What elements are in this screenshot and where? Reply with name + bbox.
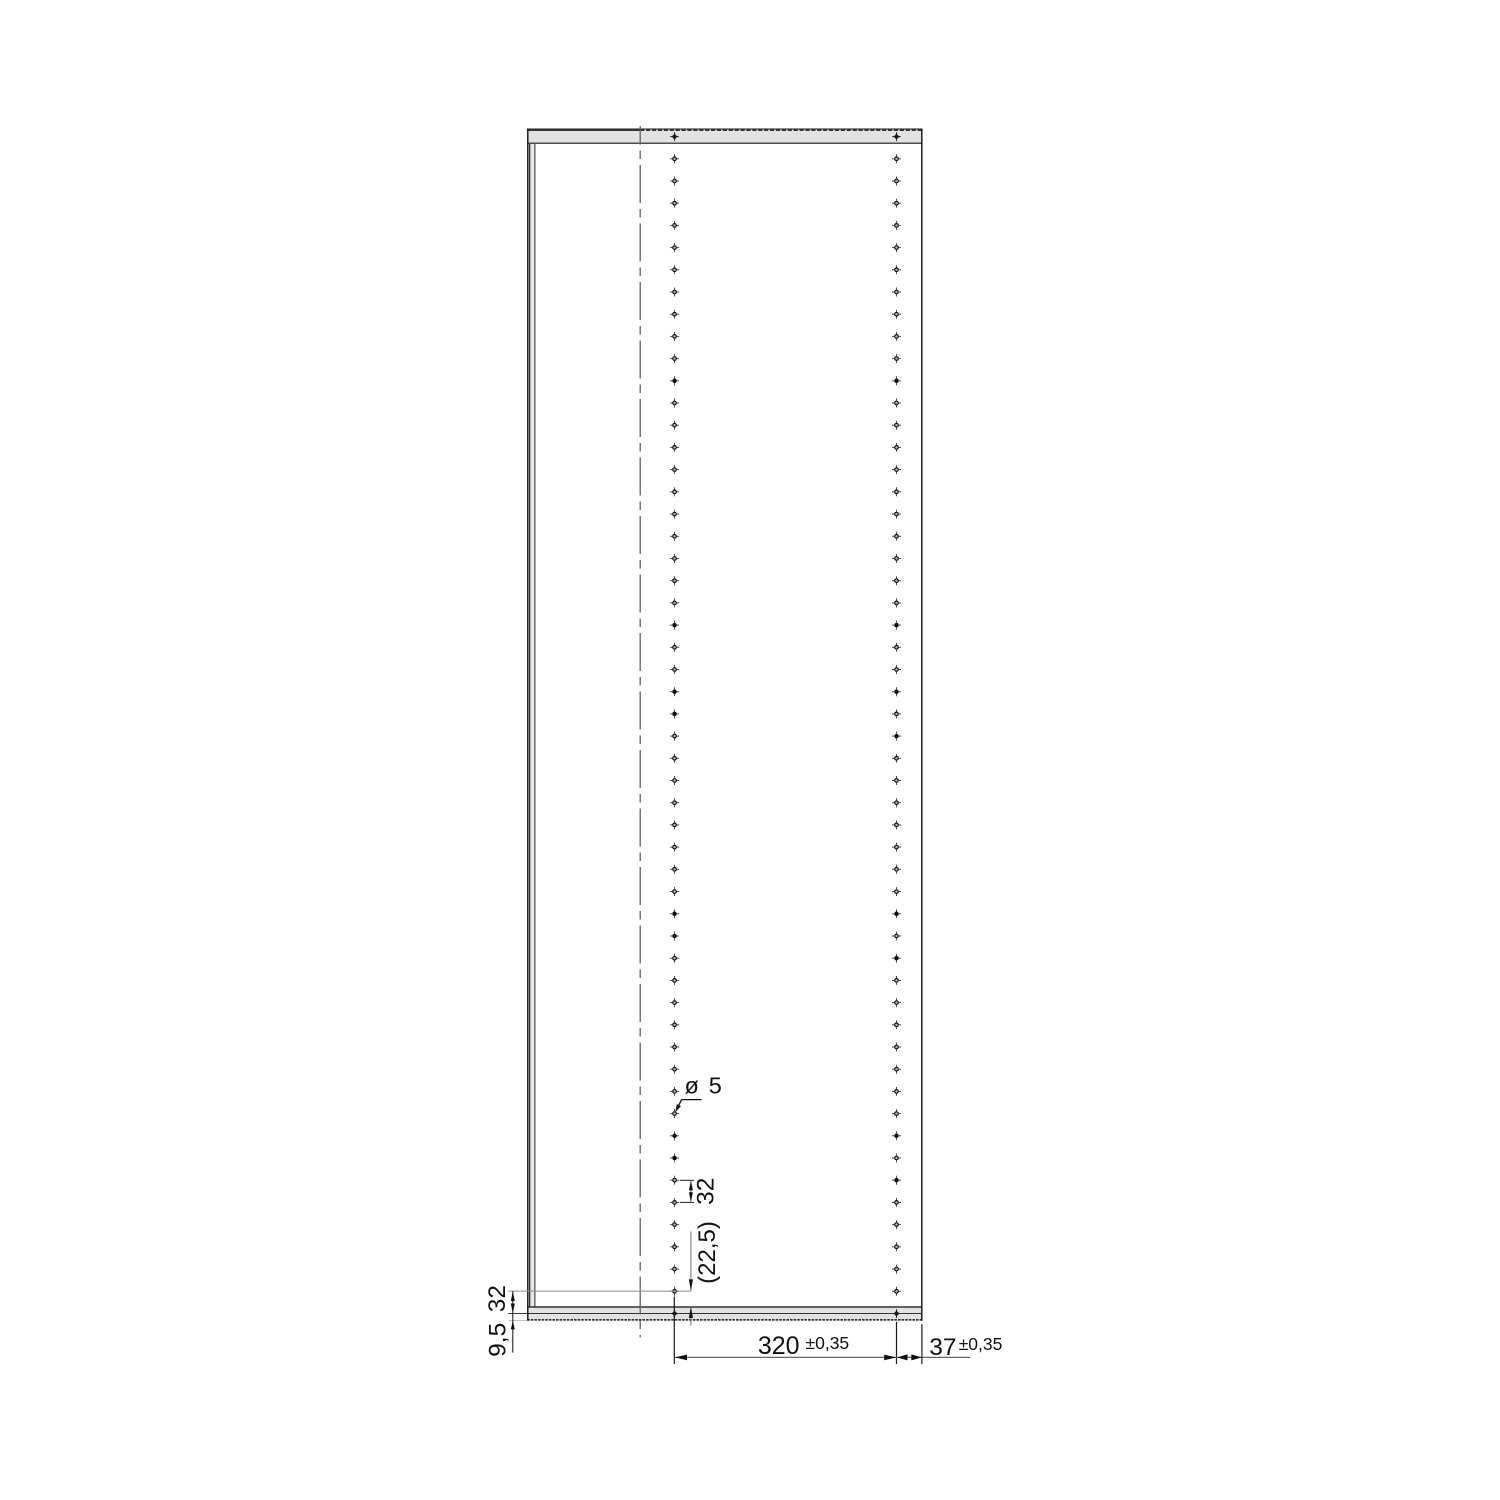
svg-text:5: 5 <box>709 1073 722 1099</box>
svg-text:(22,5): (22,5) <box>694 1221 721 1284</box>
svg-text:320: 320 <box>758 1332 800 1360</box>
svg-text:±0,35: ±0,35 <box>959 1334 1003 1354</box>
svg-text:37: 37 <box>929 1334 956 1361</box>
svg-text:32: 32 <box>693 1178 720 1205</box>
svg-text:±0,35: ±0,35 <box>806 1333 850 1353</box>
svg-text:9,5: 9,5 <box>485 1323 512 1357</box>
svg-text:32: 32 <box>484 1285 511 1312</box>
svg-text:ø: ø <box>685 1073 699 1099</box>
